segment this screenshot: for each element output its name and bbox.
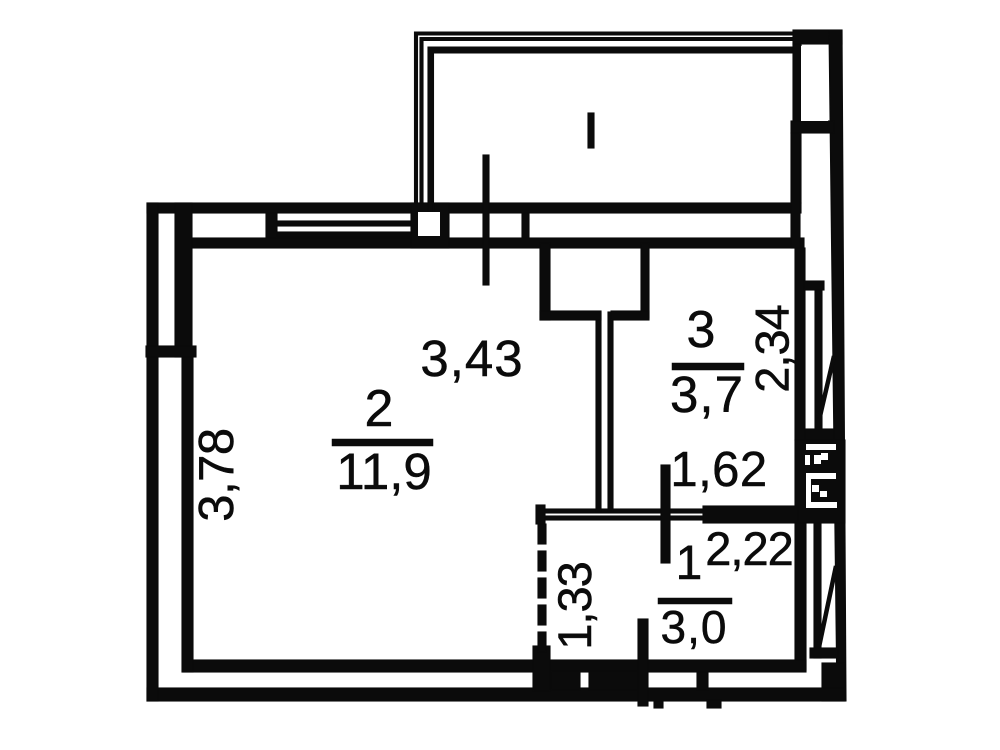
svg-text:2: 2 [365,380,394,438]
svg-text:1,62: 1,62 [670,443,767,497]
svg-text:3: 3 [687,301,716,359]
svg-text:3,0: 3,0 [661,601,728,653]
svg-text:2,22: 2,22 [705,522,792,575]
svg-text:1,33: 1,33 [548,562,601,649]
svg-text:3,78: 3,78 [190,428,244,521]
svg-text:11,9: 11,9 [336,443,431,500]
svg-text:2,34: 2,34 [746,305,799,392]
svg-text:1: 1 [676,537,703,590]
svg-text:3,43: 3,43 [420,330,523,387]
svg-text:3,7: 3,7 [670,366,744,423]
